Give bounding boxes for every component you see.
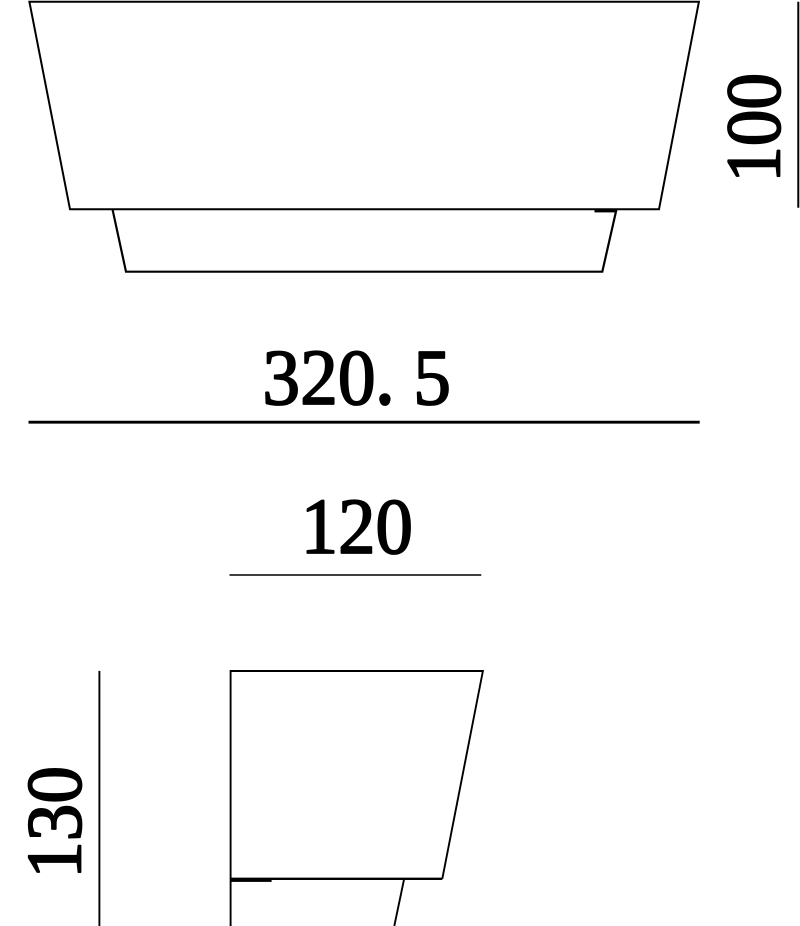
svg-text:130: 130 [10,766,97,879]
svg-text:100: 100 [710,73,796,183]
svg-text:320. 5: 320. 5 [262,334,451,422]
svg-text:120: 120 [301,483,413,571]
